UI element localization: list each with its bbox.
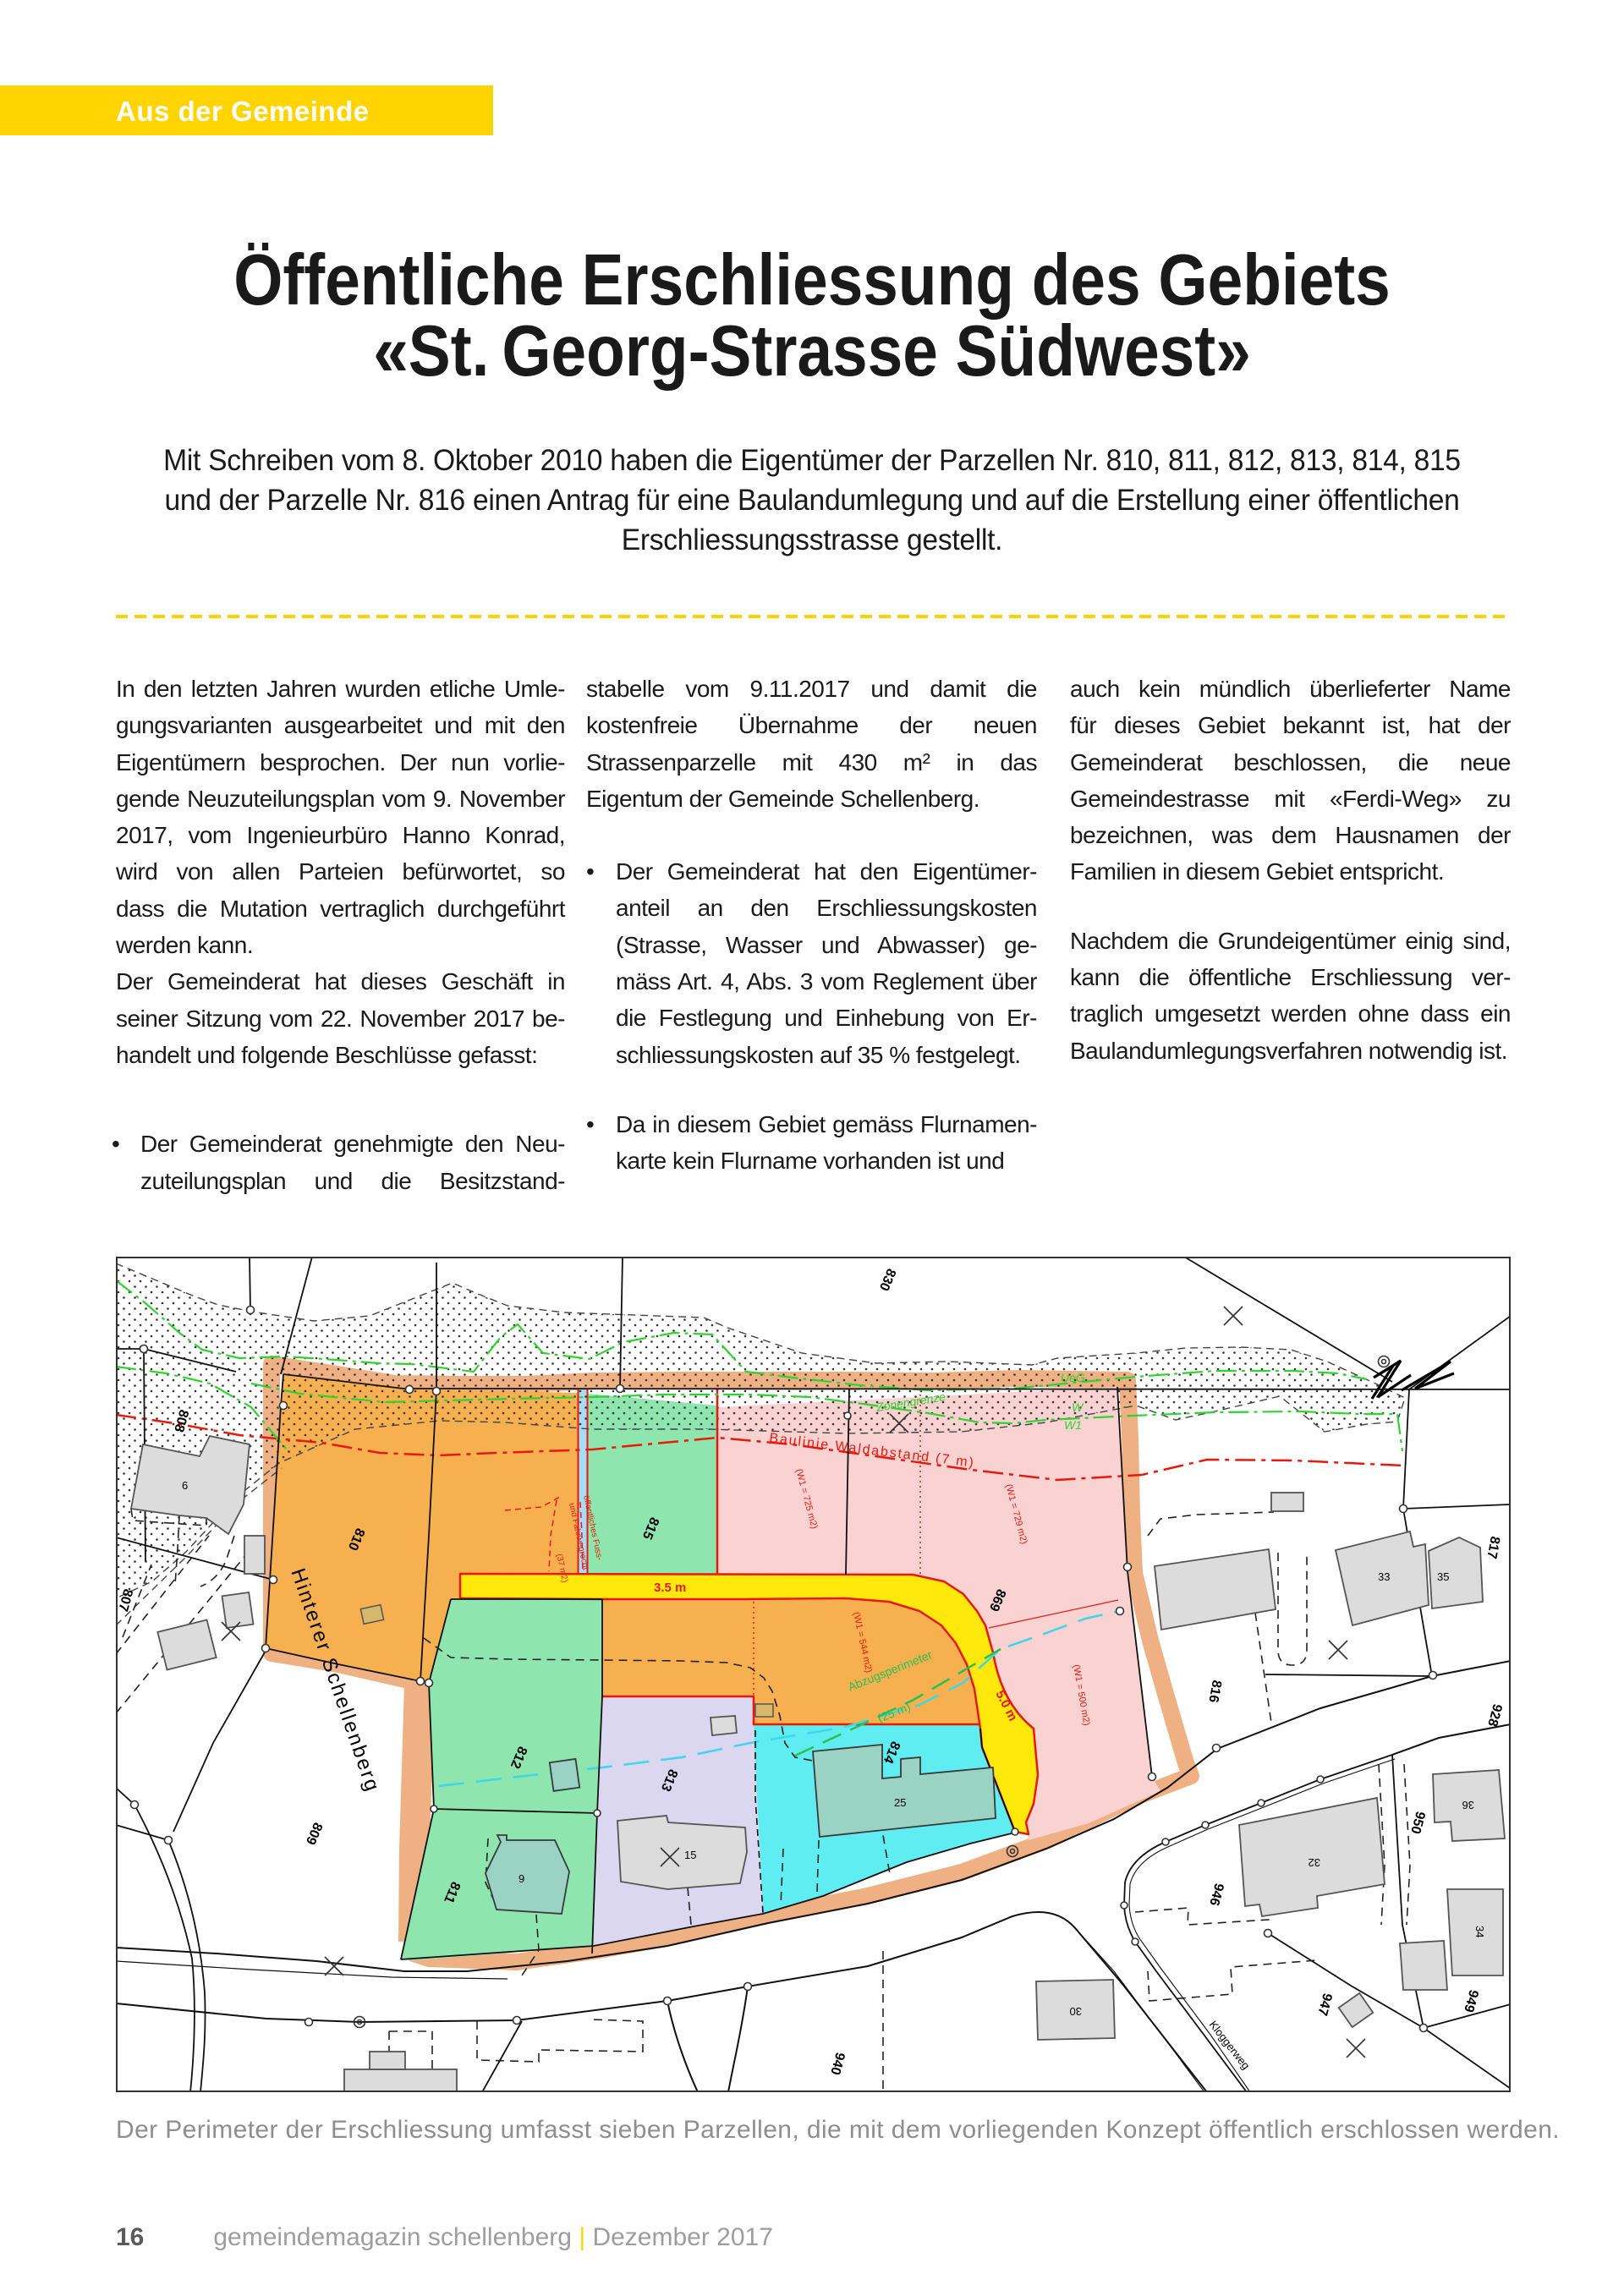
- svg-text:Kloggerweg: Kloggerweg: [1207, 2019, 1253, 2072]
- svg-text:32: 32: [1309, 1856, 1320, 1869]
- svg-text:33: 33: [1378, 1570, 1390, 1583]
- svg-text:3.5 m: 3.5 m: [654, 1581, 686, 1595]
- svg-text:30: 30: [1070, 2005, 1082, 2018]
- svg-text:W1: W1: [1064, 1418, 1082, 1432]
- svg-text:950: 950: [1407, 1810, 1427, 1835]
- svg-text:9: 9: [518, 1872, 524, 1885]
- svg-text:36: 36: [1462, 1799, 1474, 1811]
- svg-text:816: 816: [1205, 1679, 1223, 1703]
- svg-text:949: 949: [1461, 1988, 1480, 2014]
- svg-text:25: 25: [894, 1796, 906, 1809]
- svg-text:830: 830: [876, 1266, 898, 1292]
- svg-text:35: 35: [1437, 1570, 1449, 1583]
- svg-text:817: 817: [1484, 1535, 1501, 1559]
- svg-text:947: 947: [1314, 1992, 1334, 2017]
- svg-text:15: 15: [684, 1849, 696, 1861]
- svg-text:6: 6: [182, 1479, 188, 1492]
- svg-text:946: 946: [1206, 1882, 1226, 1907]
- svg-text:928: 928: [1484, 1702, 1504, 1728]
- svg-text:W: W: [1072, 1400, 1084, 1414]
- svg-text:34: 34: [1473, 1926, 1486, 1937]
- svg-text:UeG: UeG: [1061, 1371, 1085, 1384]
- svg-text:809: 809: [303, 1820, 325, 1846]
- svg-text:940: 940: [827, 2051, 847, 2076]
